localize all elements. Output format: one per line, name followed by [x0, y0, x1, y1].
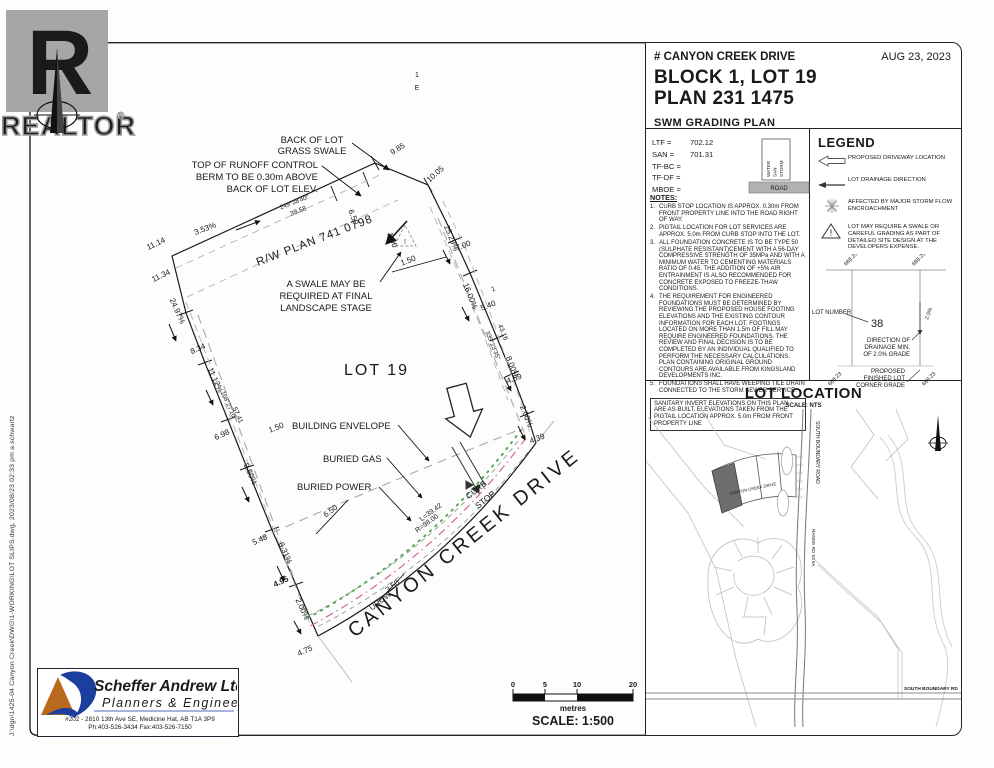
- svg-text:20: 20: [629, 680, 637, 689]
- lot-location-section: LOT LOCATION SCALE: NTS: [646, 385, 961, 739]
- dimension-label: E: [415, 85, 420, 92]
- plan-number: PLAN 231 1475: [654, 88, 951, 109]
- proposed-driveway-arrow: [438, 381, 488, 442]
- legend-item-storm: AFFECTED BY MAJOR STORM FLOW ENCROACHMEN…: [818, 197, 959, 219]
- firm-tagline: Planners & Engineers: [102, 696, 237, 710]
- svg-text:10: 10: [573, 680, 581, 689]
- back-of-lot-label: BACK OF LOT: [281, 135, 344, 146]
- note-number: 2.: [650, 225, 659, 238]
- lot-location-map: SOUTH BOUNDARY ROAD RANGE RD 53 5A CANYO…: [646, 409, 961, 727]
- firm-logo-box: Scheffer Andrew Ltd. Planners & Engineer…: [37, 668, 239, 737]
- note-number: 4.: [650, 294, 659, 380]
- swale-note-label: A SWALE MAY BE: [286, 279, 365, 290]
- dimension-label: 4.95: [272, 574, 290, 589]
- svg-text:!: !: [404, 239, 406, 246]
- dimension-label: 6.98: [213, 427, 231, 442]
- elevation-list: LTF =702.12SAN =701.31TF-BC =TF-DF =MBOE…: [652, 137, 713, 196]
- elevation-label: LTF =: [652, 137, 690, 149]
- plan-type-label: SWM GRADING PLAN: [654, 117, 951, 129]
- elevation-row: LTF =702.12: [652, 137, 713, 149]
- elevation-value: 702.12: [690, 137, 713, 149]
- note-number: 3.: [650, 240, 659, 293]
- note-text: THE REQUIREMENT FOR ENGINEERED FOUNDATIO…: [659, 294, 806, 380]
- firm-name: Scheffer Andrew Ltd.: [94, 678, 237, 695]
- legend-sample-lot-diagram: 688.25 688.25 LOT NUMBER 38 2.0% DIRECTI…: [810, 254, 962, 396]
- dimension-label: 10.05: [425, 164, 446, 184]
- svg-text:FINISHED LOT: FINISHED LOT: [864, 376, 906, 382]
- buried-power-label: BURIED POWER: [297, 482, 372, 493]
- dimension-label: 1.50: [267, 420, 285, 434]
- note-item: 4.THE REQUIREMENT FOR ENGINEERED FOUNDAT…: [650, 294, 806, 380]
- svg-text:®: ®: [117, 111, 125, 122]
- dimension-label: 8.34: [189, 341, 207, 356]
- dimension-label: 5.48: [251, 532, 269, 547]
- svg-text:OF 2.0% GRADE: OF 2.0% GRADE: [863, 352, 910, 358]
- note-text: CURB STOP LOCATION IS APPROX. 0.30m FROM…: [659, 204, 806, 224]
- svg-text:GRASS SWALE: GRASS SWALE: [278, 146, 347, 157]
- storm-star-icon: [818, 197, 848, 219]
- urow-dashed-band: [306, 441, 528, 628]
- scale-bar: 0 5 10 20 metres SCALE: 1:500: [511, 680, 637, 728]
- note-item: 1.CURB STOP LOCATION IS APPROX. 0.30m FR…: [650, 204, 806, 224]
- lot-number-key-label: LOT NUMBER: [812, 310, 852, 316]
- elevation-label: SAN =: [652, 149, 690, 161]
- dimension-label: 1.00: [385, 231, 399, 249]
- note-item: 2.PIGTAIL LOCATION FOR LOT SERVICES ARE …: [650, 225, 806, 238]
- dimension-label: 24.97%: [168, 297, 187, 325]
- site-address: # CANYON CREEK DRIVE: [654, 51, 795, 63]
- dimension-label: 2.00%: [518, 404, 535, 428]
- svg-text:REQUIRED AT FINAL: REQUIRED AT FINAL: [279, 291, 372, 302]
- berm-label: TOP OF RUNOFF CONTROL: [192, 160, 318, 171]
- legend-item-driveway: PROPOSED DRIVEWAY LOCATION: [818, 153, 959, 172]
- svg-text:0: 0: [511, 680, 515, 689]
- south-boundary-rd-label: SOUTH BOUNDARY RD: [904, 686, 958, 692]
- map-north-arrow-icon: [928, 415, 948, 451]
- firm-logo: Scheffer Andrew Ltd. Planners & Engineer…: [38, 669, 237, 735]
- dimension-label: 9.85: [389, 141, 407, 157]
- file-path-stamp: J:\dgn\1425-04 Canyon Creek\DWG\1-WORKIN…: [9, 276, 16, 736]
- legend-item-drainage: LOT DRAINAGE DIRECTION: [818, 175, 959, 194]
- legend-column: LEGEND PROPOSED DRIVEWAY LOCATION LOT DR…: [810, 129, 961, 380]
- svg-text:688.25: 688.25: [843, 254, 859, 267]
- svg-text:BACK OF LOT ELEV.: BACK OF LOT ELEV.: [227, 184, 318, 195]
- lot-19-parcel: [172, 156, 554, 682]
- svg-text:STORM: STORM: [779, 160, 784, 177]
- info-columns: LTF =702.12SAN =701.31TF-BC =TF-DF =MBOE…: [646, 129, 961, 381]
- dimension-label: 11.14: [145, 235, 167, 252]
- note-item: 3.ALL FOUNDATION CONCRETE IS TO BE TYPE …: [650, 240, 806, 293]
- dimension-label: 16.00%: [461, 282, 480, 311]
- note-text: ALL FOUNDATION CONCRETE IS TO BE TYPE 50…: [659, 240, 806, 293]
- notes-heading: NOTES:: [650, 193, 806, 202]
- warning-triangle-icon: !: [818, 222, 848, 244]
- svg-text:LANDSCAPE STAGE: LANDSCAPE STAGE: [280, 303, 372, 314]
- building-envelope-label: BUILDING ENVELOPE: [292, 421, 391, 432]
- range-road-label: RANGE RD 53 5A: [811, 529, 816, 567]
- drainage-arrow-icon: [818, 175, 848, 194]
- notes-list: 1.CURB STOP LOCATION IS APPROX. 0.30m FR…: [650, 204, 806, 395]
- buried-gas-label: BURIED GAS: [323, 454, 382, 465]
- svg-text:SAN: SAN: [773, 168, 778, 177]
- scale-ratio-label: SCALE: 1:500: [532, 714, 614, 728]
- svg-text:DIRECTION OF: DIRECTION OF: [867, 338, 910, 344]
- lot-number-label: LOT 19: [344, 362, 409, 379]
- plan-date: AUG 23, 2023: [881, 51, 951, 63]
- lot-location-title: LOT LOCATION: [646, 385, 961, 402]
- sample-lot-number: 38: [871, 318, 883, 330]
- dimension-label: 4.75: [296, 643, 314, 658]
- scale-unit-label: metres: [560, 704, 587, 713]
- dimension-label: 8.31%: [277, 541, 294, 565]
- svg-text:688.25: 688.25: [911, 254, 927, 267]
- svg-text:WATER: WATER: [766, 160, 771, 177]
- dimension-label: 3.53%: [193, 220, 217, 237]
- svg-text:BERM TO BE 0.30m ABOVE: BERM TO BE 0.30m ABOVE: [196, 172, 318, 183]
- dimension-label: 11.12%: [206, 366, 225, 394]
- elevation-row: TF-DF =: [652, 172, 713, 184]
- elevations-and-notes-column: LTF =702.12SAN =701.31TF-BC =TF-DF =MBOE…: [646, 129, 810, 380]
- legend-item-swale-warning: ! LOT MAY REQUIRE A SWALE OR CAREFUL GRA…: [818, 222, 959, 251]
- svg-text:2.0%: 2.0%: [924, 307, 934, 321]
- firm-phone: Ph:403-526-3434 Fax:403-526-7150: [88, 724, 192, 731]
- block-lot-title: BLOCK 1, LOT 19: [654, 67, 951, 88]
- street-name-label: CANYON CREEK DRIVE: [344, 445, 584, 643]
- elevation-label: TF-BC =: [652, 161, 690, 173]
- dimension-label: 1: [490, 286, 496, 294]
- realtor-watermark: R REALTOR ®: [1, 10, 136, 141]
- dimension-label: 1: [415, 72, 419, 79]
- elevation-row: TF-BC =: [652, 161, 713, 173]
- road-label: ROAD: [770, 186, 788, 192]
- svg-text:!: !: [830, 228, 833, 238]
- title-block-header: # CANYON CREEK DRIVE AUG 23, 2023 BLOCK …: [646, 43, 961, 129]
- dimension-label: 6.50: [322, 502, 340, 519]
- elevation-label: TF-DF =: [652, 172, 690, 184]
- elevation-row: SAN =701.31: [652, 149, 713, 161]
- dimension-label: 2.00%: [294, 597, 311, 621]
- driveway-arrow-icon: [818, 153, 848, 172]
- legend-title: LEGEND: [818, 135, 961, 150]
- south-boundary-road-line: [795, 409, 811, 727]
- firm-address: #202 - 2810 13th Ave SE, Medicine Hat, A…: [65, 716, 215, 723]
- dimension-label: 11.34: [150, 267, 172, 284]
- note-number: 1.: [650, 204, 659, 224]
- svg-text:5: 5: [543, 680, 547, 689]
- south-boundary-road-label: SOUTH BOUNDARY ROAD: [814, 421, 820, 484]
- elevation-value: 701.31: [690, 149, 713, 161]
- svg-text:PROPOSED: PROPOSED: [871, 369, 906, 375]
- note-text: PIGTAIL LOCATION FOR LOT SERVICES ARE AP…: [659, 225, 806, 238]
- lot-road-symbol: WATER SAN STORM ROAD: [748, 137, 810, 195]
- title-block-panel: # CANYON CREEK DRIVE AUG 23, 2023 BLOCK …: [645, 42, 962, 736]
- svg-text:DRAINAGE MIN.: DRAINAGE MIN.: [864, 345, 910, 351]
